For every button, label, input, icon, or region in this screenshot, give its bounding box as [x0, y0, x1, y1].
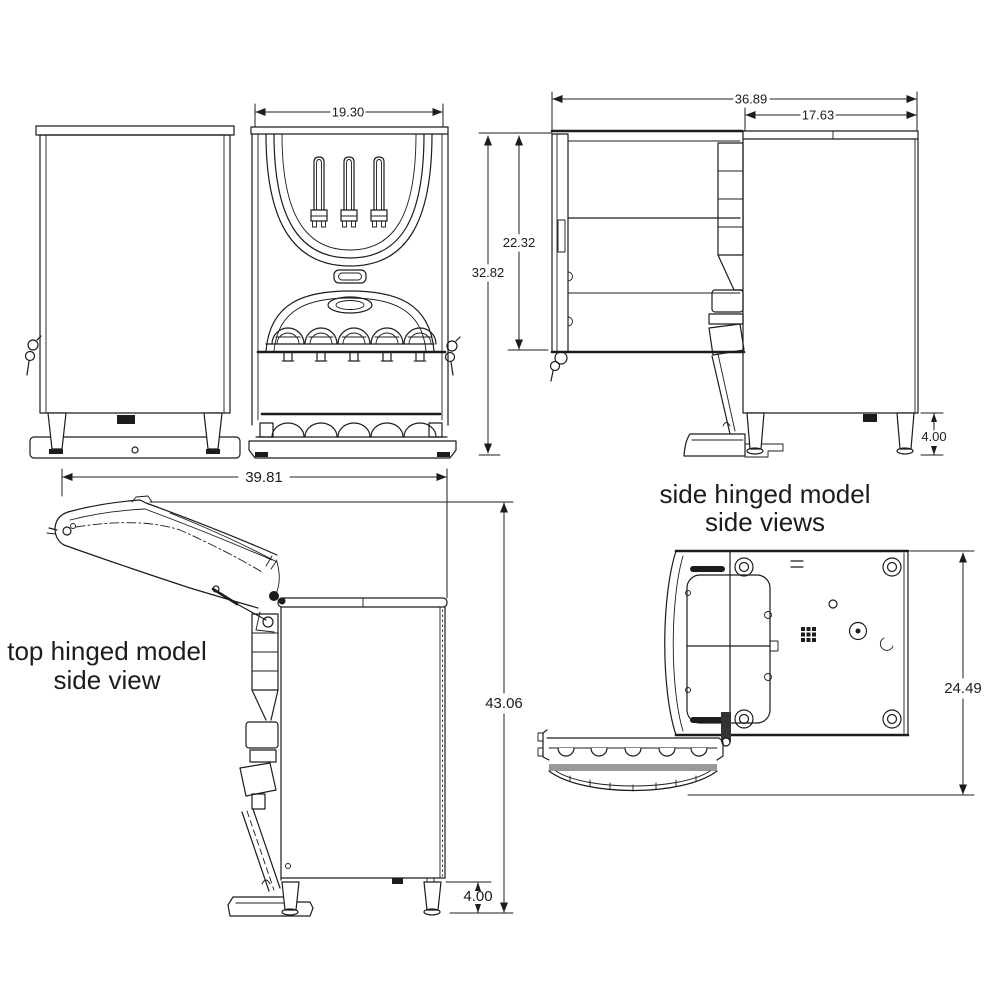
front-drip-tray [249, 423, 456, 458]
dim-open-height: 43.06 [450, 503, 523, 913]
cabinet-body-side [684, 131, 918, 457]
lock-icon [26, 336, 42, 375]
technical-drawing-canvas: 19.30 [0, 0, 1000, 1000]
dim-label-24-49: 24.49 [944, 680, 982, 697]
dim-label-4-00-side: 4.00 [921, 429, 946, 444]
front-top-cap [251, 127, 448, 134]
dim-label-22-32: 22.32 [503, 235, 536, 250]
dim-open-width: 24.49 [688, 551, 982, 795]
dim-label-43-06: 43.06 [485, 695, 523, 712]
closed-door-outer-curve [665, 551, 676, 735]
door-gasket-band [549, 764, 717, 771]
front-view: 19.30 [249, 104, 460, 458]
dim-leg-height: 4.00 [446, 882, 493, 913]
hood-hinge-pin [269, 591, 279, 601]
front-bowl [266, 134, 432, 266]
dimensional-drawing-page: 19.30 [0, 0, 1000, 1000]
dim-leg-height: 4.00 [921, 413, 947, 455]
caption-top-hinged-line1: top hinged model [7, 636, 206, 666]
dim-door-length: 22.32 [503, 136, 548, 350]
rear-leg [897, 413, 914, 449]
side-view-door-open: 36.89 17.63 22.32 32.82 [472, 92, 947, 458]
top-panel-marks [791, 561, 893, 650]
dim-height: 32.82 [472, 136, 505, 455]
dim-total-depth: 36.89 [552, 92, 917, 132]
corner-foot-icon [735, 558, 901, 728]
dim-label-36-89: 36.89 [735, 92, 768, 107]
caption-side-hinged-line2: side views [705, 507, 825, 537]
door-liner [687, 575, 770, 723]
door-grille-ticks [570, 776, 696, 791]
rear-view [26, 126, 241, 458]
open-door-plan [538, 712, 731, 791]
front-dispense-nozzles [282, 352, 426, 361]
open-hood [47, 496, 286, 632]
dim-front-width: 19.30 [255, 104, 443, 127]
dim-label-32-82: 32.82 [472, 265, 505, 280]
dim-label-4-00-top-hinged: 4.00 [463, 888, 492, 905]
caption-side-hinged-line1: side hinged model [659, 479, 870, 509]
front-spray-tubes [311, 157, 387, 227]
side-hinged-plan-views: side hinged model side views [538, 479, 982, 795]
door-hinge-icon [551, 352, 568, 381]
front-leg [282, 882, 299, 910]
top-hinged-side-view: top hinged model side view 39.81 [7, 469, 523, 916]
gas-strut [213, 586, 274, 632]
dim-label-17-63: 17.63 [802, 108, 835, 123]
rear-body-panel [40, 135, 230, 413]
rear-right-leg [204, 413, 222, 449]
caption-top-hinged-line2: side view [54, 665, 161, 695]
dim-label-19-30: 19.30 [332, 105, 365, 120]
cabinet-body-side-open-top [228, 598, 447, 916]
rear-leg [424, 882, 441, 910]
dim-cabinet-depth: 17.63 [745, 108, 916, 132]
floor-drip-tray [684, 434, 745, 456]
dim-open-depth: 39.81 [62, 469, 447, 598]
front-leg [747, 413, 764, 449]
cabinet-top-plan [665, 551, 908, 735]
valve-assembly [246, 722, 278, 748]
dim-label-39-81: 39.81 [245, 469, 283, 486]
open-door-flat [551, 131, 745, 381]
rear-top-cap [36, 126, 234, 135]
front-valve-panel [266, 291, 436, 351]
rear-left-leg [48, 413, 66, 449]
floor-drip-tray [228, 897, 313, 916]
